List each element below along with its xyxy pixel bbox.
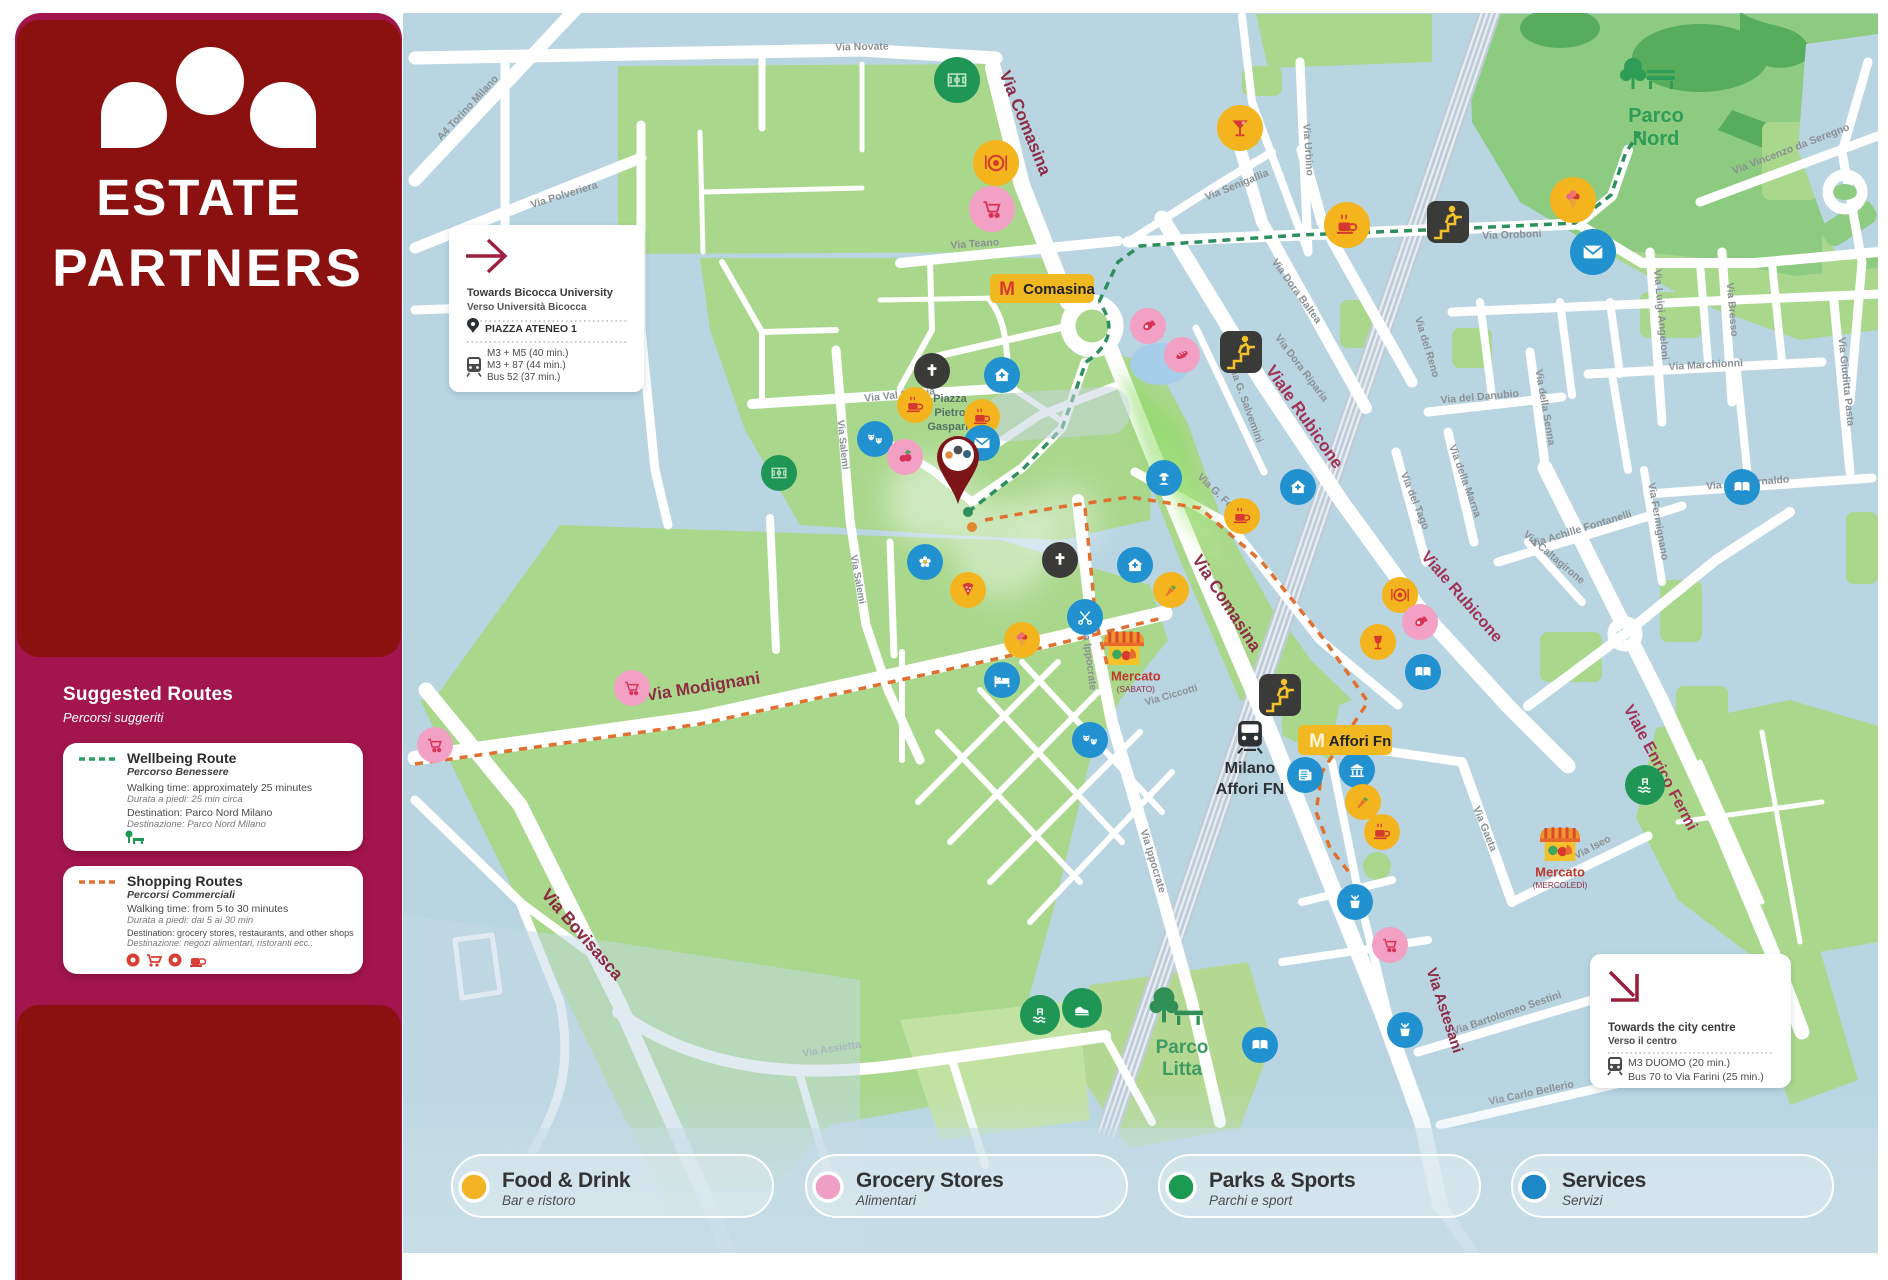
svg-text:(MERCOLEDÌ): (MERCOLEDÌ) [1533,880,1588,890]
svg-text:Destinazione: negozi alimentar: Destinazione: negozi alimentari, ristora… [127,938,313,948]
svg-text:Nord: Nord [1633,128,1680,150]
svg-text:ESTATE: ESTATE [96,169,302,226]
svg-text:M3 + 87 (44 min.): M3 + 87 (44 min.) [487,360,566,371]
svg-text:PARTNERS: PARTNERS [52,239,364,298]
svg-text:Destination: Parco Nord Milano: Destination: Parco Nord Milano [127,807,272,819]
svg-text:Bus 52 (37 min.): Bus 52 (37 min.) [487,372,560,383]
svg-text:Grocery Stores: Grocery Stores [856,1169,1004,1192]
svg-text:Verso il centro: Verso il centro [1608,1036,1677,1047]
svg-text:Affori Fn: Affori Fn [1329,733,1391,750]
svg-text:Parchi e sport: Parchi e sport [1209,1193,1294,1208]
svg-text:Food & Drink: Food & Drink [502,1169,631,1192]
svg-text:Shopping Routes: Shopping Routes [127,873,243,889]
svg-text:Milano: Milano [1225,760,1276,777]
svg-text:Towards the city centre: Towards the city centre [1608,1022,1736,1034]
svg-text:Alimentari: Alimentari [855,1193,917,1208]
svg-text:Walking time: approximately 25: Walking time: approximately 25 minutes [127,782,312,794]
svg-text:Destination: grocery stores, r: Destination: grocery stores, restaurants… [127,928,354,938]
svg-text:Parks & Sports: Parks & Sports [1209,1169,1355,1192]
svg-text:M3 DUOMO (20 min.): M3 DUOMO (20 min.) [1628,1057,1730,1069]
svg-text:Via Novate: Via Novate [835,41,889,54]
svg-text:M: M [999,279,1015,300]
svg-text:Comasina: Comasina [1023,281,1095,298]
svg-text:Via Oroboni: Via Oroboni [1482,228,1542,242]
svg-text:PIAZZA ATENEO 1: PIAZZA ATENEO 1 [485,323,577,335]
svg-text:Servizi: Servizi [1562,1193,1604,1208]
svg-text:Walking time: from 5 to 30 min: Walking time: from 5 to 30 minutes [127,903,288,915]
svg-text:Parco: Parco [1156,1037,1209,1058]
svg-text:Durata a piedi: 25 min circa: Durata a piedi: 25 min circa [127,794,243,805]
svg-text:Mercato: Mercato [1535,864,1585,879]
svg-text:(SABATO): (SABATO) [1117,685,1155,694]
svg-text:Mercato: Mercato [1111,668,1161,683]
svg-text:Bar e ristoro: Bar e ristoro [502,1193,576,1208]
svg-text:Destinazione: Parco Nord Milan: Destinazione: Parco Nord Milano [127,819,266,830]
svg-text:Durata a piedi: dai 5 ai 30 mi: Durata a piedi: dai 5 ai 30 min [127,915,253,926]
svg-text:Pietro: Pietro [934,407,965,419]
svg-text:Parco: Parco [1628,105,1684,127]
svg-text:Verso Università Bicocca: Verso Università Bicocca [467,302,587,313]
svg-text:M3 + M5 (40 min.): M3 + M5 (40 min.) [487,348,568,359]
svg-text:Wellbeing Route: Wellbeing Route [127,750,237,766]
svg-text:Litta: Litta [1162,1059,1203,1080]
svg-text:M: M [1309,731,1325,752]
svg-text:Percorso Benessere: Percorso Benessere [127,766,229,778]
svg-text:Affori FN: Affori FN [1216,781,1284,798]
svg-text:Services: Services [1562,1169,1646,1192]
svg-text:Bus 70 to Via Farini (25 min.): Bus 70 to Via Farini (25 min.) [1628,1071,1764,1083]
svg-text:Percorsi Commerciali: Percorsi Commerciali [127,889,236,901]
svg-text:Towards Bicocca University: Towards Bicocca University [467,287,614,299]
svg-text:Piazza: Piazza [933,393,968,405]
